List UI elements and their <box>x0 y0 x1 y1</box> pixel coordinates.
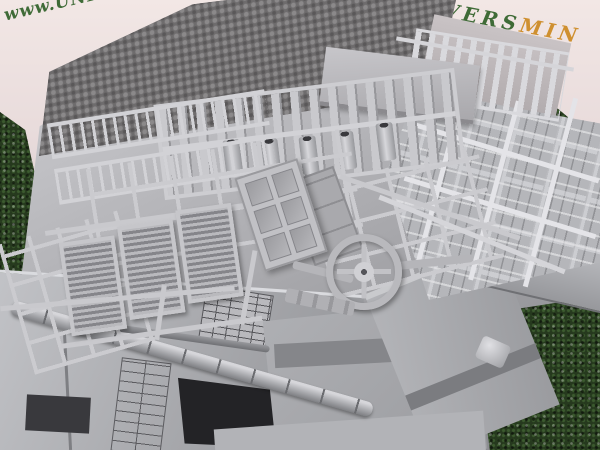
door-panel <box>262 232 291 262</box>
door-panel <box>271 168 300 198</box>
brick-quoin-strip <box>110 357 171 450</box>
door-panel <box>254 204 283 234</box>
door-panel <box>280 196 309 226</box>
door-panel <box>289 223 318 253</box>
chimney-pot <box>375 122 397 162</box>
wheel-hub <box>354 262 374 282</box>
louvered-shutter <box>59 235 128 336</box>
model-kit-photo: www.UNI VERSMIN <box>0 0 600 450</box>
window-notch <box>25 394 91 433</box>
louvered-shutter <box>117 219 186 320</box>
door-panel <box>245 177 274 207</box>
panel-groove <box>405 343 541 410</box>
